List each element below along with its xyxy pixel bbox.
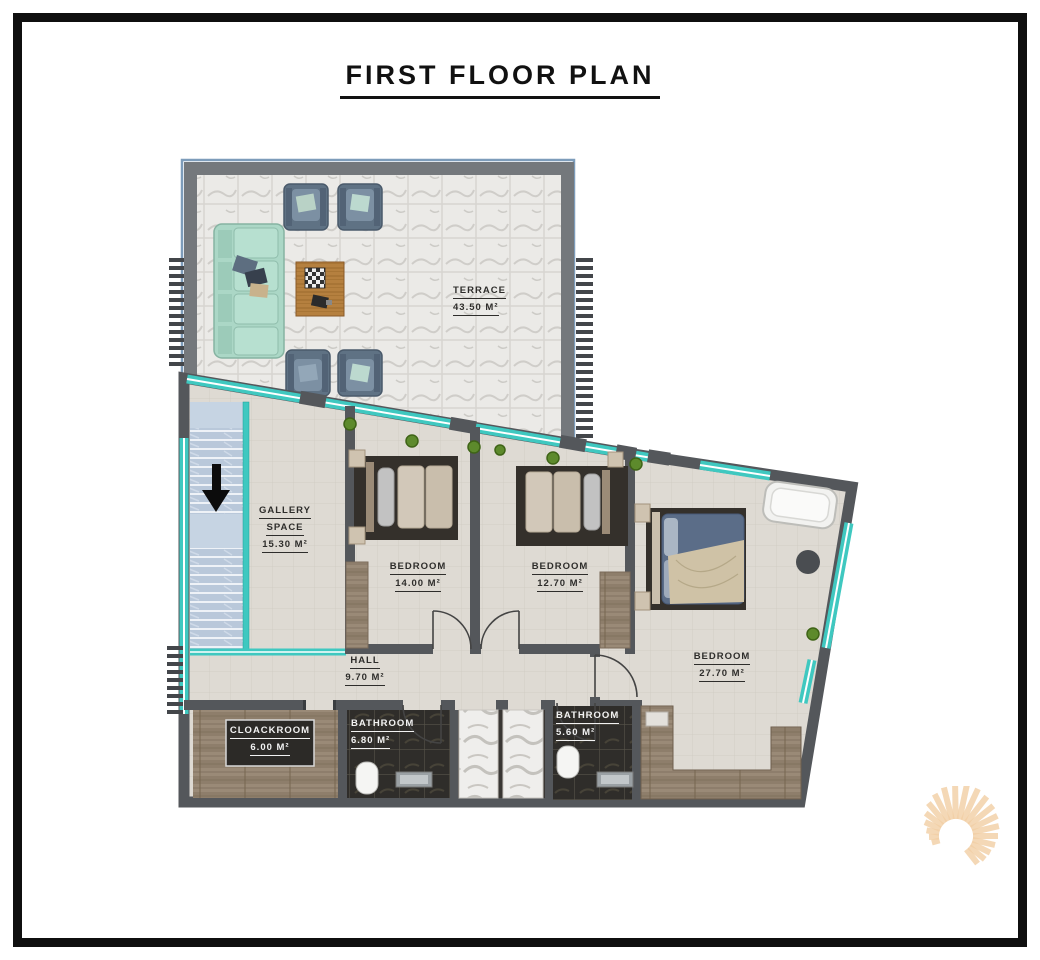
room-area: 14.00 M²	[395, 579, 441, 592]
bedroom3-label: BEDROOM 27.70 M²	[672, 652, 772, 686]
room-name: SPACE	[266, 523, 303, 536]
cloackroom-label: CLOACKROOM 6.00 M²	[226, 726, 314, 760]
room-name: HALL	[350, 656, 379, 669]
room-area: 12.70 M²	[537, 579, 583, 592]
left-railing-hatches	[167, 646, 183, 714]
terrace-railing-right	[576, 258, 593, 438]
bedroom1-label: BEDROOM 14.00 M²	[368, 562, 468, 596]
room-name: BATHROOM	[556, 711, 619, 724]
bedroom2-label: BEDROOM 12.70 M²	[510, 562, 610, 596]
floor-plan-page: FIRST FLOOR PLAN	[0, 0, 1040, 960]
room-area: 6.00 M²	[250, 743, 289, 756]
hall-label: HALL 9.70 M²	[320, 656, 410, 690]
room-name: TERRACE	[453, 286, 506, 299]
room-name: BATHROOM	[351, 719, 414, 732]
shower-area	[458, 710, 545, 798]
floor-plan-drawing	[0, 0, 1040, 960]
room-name: GALLERY	[259, 506, 311, 519]
room-area: 5.60 M²	[556, 728, 595, 741]
room-area: 6.80 M²	[351, 736, 390, 749]
room-name: CLOACKROOM	[230, 726, 310, 739]
staircase	[190, 402, 249, 654]
pouf	[796, 550, 820, 574]
terrace-label: TERRACE 43.50 M²	[453, 286, 506, 320]
sun-logo	[898, 786, 1010, 888]
terrace-sofa	[214, 224, 284, 358]
terrace-coffee-table	[296, 262, 344, 316]
room-area: 43.50 M²	[453, 303, 499, 316]
room-area: 9.70 M²	[345, 673, 384, 686]
room-name: BEDROOM	[532, 562, 589, 575]
room-name: BEDROOM	[390, 562, 447, 575]
room-area: 27.70 M²	[699, 669, 745, 682]
bathroom2-label: BATHROOM 5.60 M²	[556, 711, 619, 745]
room-name: BEDROOM	[694, 652, 751, 665]
room-area: 15.30 M²	[262, 540, 308, 553]
gallery-label: GALLERY SPACE 15.30 M²	[246, 506, 324, 557]
bathroom1-label: BATHROOM 6.80 M²	[351, 719, 414, 753]
bathtub	[762, 480, 839, 530]
